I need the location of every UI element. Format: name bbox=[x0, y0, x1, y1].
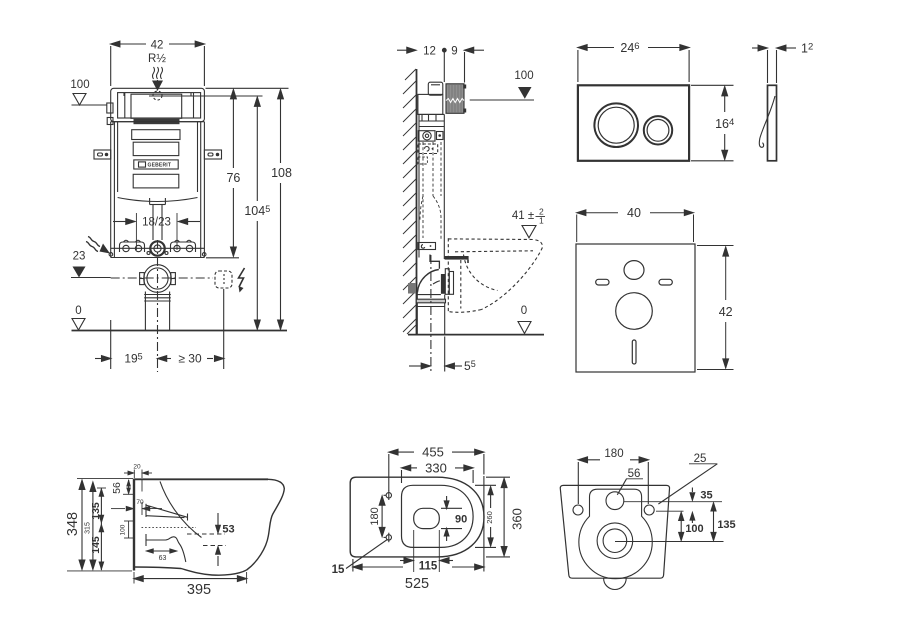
svg-text:115: 115 bbox=[419, 561, 438, 573]
svg-text:56: 56 bbox=[628, 468, 641, 480]
svg-text:100: 100 bbox=[70, 79, 89, 91]
svg-text:20: 20 bbox=[133, 464, 141, 471]
svg-text:455: 455 bbox=[422, 445, 444, 460]
svg-text:360: 360 bbox=[510, 508, 525, 530]
svg-text:63: 63 bbox=[159, 555, 167, 562]
svg-text:260: 260 bbox=[485, 511, 494, 524]
svg-text:0: 0 bbox=[521, 305, 527, 317]
svg-text:0: 0 bbox=[75, 305, 81, 317]
svg-text:315: 315 bbox=[85, 522, 92, 534]
svg-text:35: 35 bbox=[700, 490, 712, 502]
svg-text:100: 100 bbox=[685, 523, 703, 535]
svg-text:12: 12 bbox=[423, 46, 436, 58]
svg-text:23: 23 bbox=[73, 251, 86, 263]
svg-text:53: 53 bbox=[222, 524, 234, 536]
svg-text:525: 525 bbox=[405, 576, 429, 592]
svg-text:40: 40 bbox=[627, 206, 641, 220]
svg-text:90: 90 bbox=[455, 514, 467, 526]
svg-text:56: 56 bbox=[111, 482, 123, 494]
svg-text:100: 100 bbox=[514, 70, 533, 82]
svg-text:42: 42 bbox=[719, 305, 733, 319]
svg-text:R½: R½ bbox=[148, 53, 166, 65]
svg-text:42: 42 bbox=[151, 40, 164, 52]
svg-text:395: 395 bbox=[187, 582, 211, 598]
svg-text:145: 145 bbox=[90, 536, 102, 554]
svg-text:180: 180 bbox=[604, 448, 623, 460]
svg-text:18/23: 18/23 bbox=[142, 217, 171, 229]
svg-text:GEBERIT: GEBERIT bbox=[148, 163, 172, 169]
svg-text:9: 9 bbox=[451, 46, 457, 58]
svg-text:76: 76 bbox=[226, 171, 240, 185]
svg-text:1: 1 bbox=[539, 216, 544, 226]
svg-text:15: 15 bbox=[332, 564, 345, 576]
svg-text:108: 108 bbox=[271, 166, 292, 180]
svg-text:70: 70 bbox=[136, 499, 144, 506]
svg-text:135: 135 bbox=[717, 519, 735, 531]
svg-text:41 ±: 41 ± bbox=[512, 210, 534, 222]
svg-text:348: 348 bbox=[65, 512, 81, 536]
svg-text:330: 330 bbox=[425, 460, 447, 475]
svg-text:25: 25 bbox=[694, 453, 707, 465]
svg-text:180: 180 bbox=[369, 507, 381, 525]
svg-text:100: 100 bbox=[120, 524, 127, 535]
svg-text:≥ 30: ≥ 30 bbox=[178, 352, 202, 366]
svg-text:135: 135 bbox=[90, 502, 102, 520]
